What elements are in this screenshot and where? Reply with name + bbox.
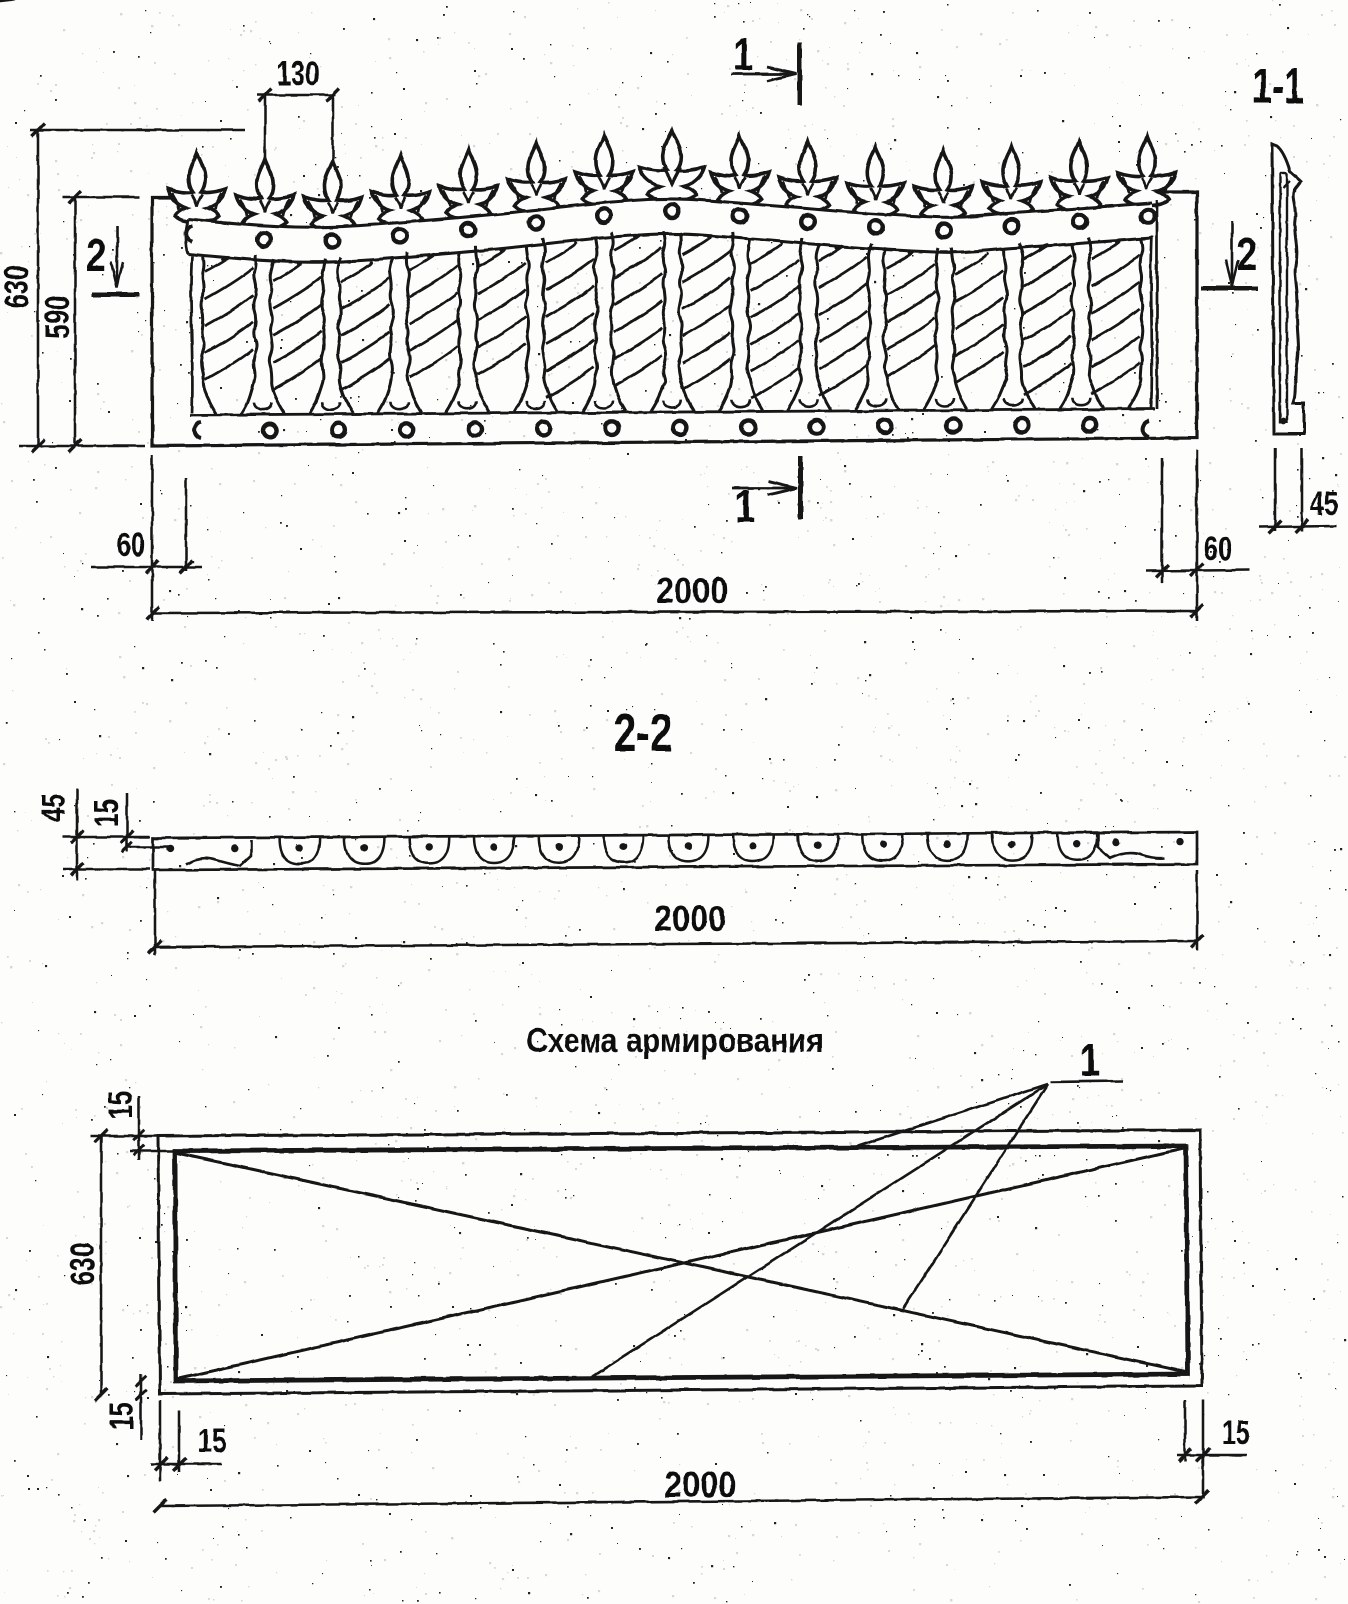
svg-text:2000: 2000 bbox=[654, 899, 726, 939]
svg-text:2: 2 bbox=[86, 229, 106, 281]
svg-text:60: 60 bbox=[1204, 531, 1232, 568]
svg-text:2000: 2000 bbox=[664, 1465, 736, 1505]
svg-text:630: 630 bbox=[65, 1243, 102, 1286]
svg-text:45: 45 bbox=[36, 794, 73, 822]
svg-text:1-1: 1-1 bbox=[1252, 59, 1304, 114]
svg-text:15: 15 bbox=[103, 1091, 140, 1119]
svg-text:2-2: 2-2 bbox=[614, 703, 673, 763]
svg-text:Схема армирования: Схема армирования bbox=[526, 1021, 823, 1059]
svg-text:2000: 2000 bbox=[656, 571, 728, 611]
svg-text:1: 1 bbox=[735, 480, 755, 532]
svg-text:15: 15 bbox=[1222, 1415, 1250, 1452]
svg-text:2: 2 bbox=[1237, 228, 1257, 280]
svg-text:1: 1 bbox=[733, 28, 753, 80]
svg-text:15: 15 bbox=[104, 1402, 141, 1430]
svg-text:15: 15 bbox=[198, 1423, 226, 1460]
svg-text:590: 590 bbox=[40, 296, 77, 339]
svg-text:60: 60 bbox=[117, 527, 145, 564]
svg-text:15: 15 bbox=[89, 799, 126, 827]
svg-text:45: 45 bbox=[1310, 486, 1338, 523]
svg-text:1: 1 bbox=[1080, 1034, 1100, 1086]
svg-text:130: 130 bbox=[277, 56, 320, 93]
svg-text:630: 630 bbox=[0, 266, 36, 309]
